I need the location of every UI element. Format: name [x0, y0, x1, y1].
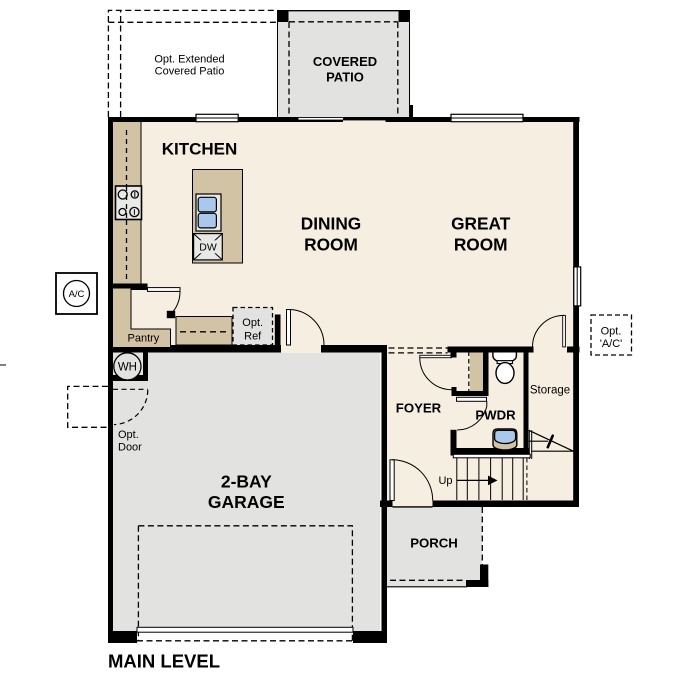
svg-text:Storage: Storage — [530, 384, 570, 396]
svg-text:Up: Up — [438, 475, 452, 487]
svg-text:Opt. Extended: Opt. Extended — [154, 53, 224, 65]
svg-text:Opt.: Opt. — [118, 429, 139, 441]
svg-text:KITCHEN: KITCHEN — [162, 140, 238, 159]
svg-text:A/C: A/C — [69, 289, 85, 300]
svg-text:2-BAY: 2-BAY — [221, 471, 272, 491]
svg-text:COVERED: COVERED — [313, 54, 377, 69]
svg-text:MAIN LEVEL: MAIN LEVEL — [108, 651, 220, 672]
svg-text:PORCH: PORCH — [410, 536, 458, 551]
svg-text:Opt.: Opt. — [601, 325, 622, 337]
svg-text:Covered Patio: Covered Patio — [155, 66, 225, 78]
svg-text:Ref: Ref — [244, 331, 262, 343]
svg-text:PWDR: PWDR — [475, 408, 516, 423]
svg-text:Door: Door — [118, 441, 142, 453]
svg-text:GARAGE: GARAGE — [208, 492, 285, 512]
svg-text:'A/C': 'A/C' — [600, 338, 623, 350]
svg-text:FOYER: FOYER — [396, 400, 442, 415]
svg-text:ROOM: ROOM — [304, 234, 358, 254]
svg-text:DW: DW — [199, 242, 217, 254]
svg-text:PATIO: PATIO — [326, 70, 364, 85]
svg-text:DINING: DINING — [301, 213, 361, 233]
svg-text:Opt.: Opt. — [242, 317, 263, 329]
svg-text:WH: WH — [118, 362, 137, 374]
svg-text:ROOM: ROOM — [454, 234, 508, 254]
svg-text:GREAT: GREAT — [451, 213, 511, 233]
svg-text:Pantry: Pantry — [128, 333, 160, 345]
